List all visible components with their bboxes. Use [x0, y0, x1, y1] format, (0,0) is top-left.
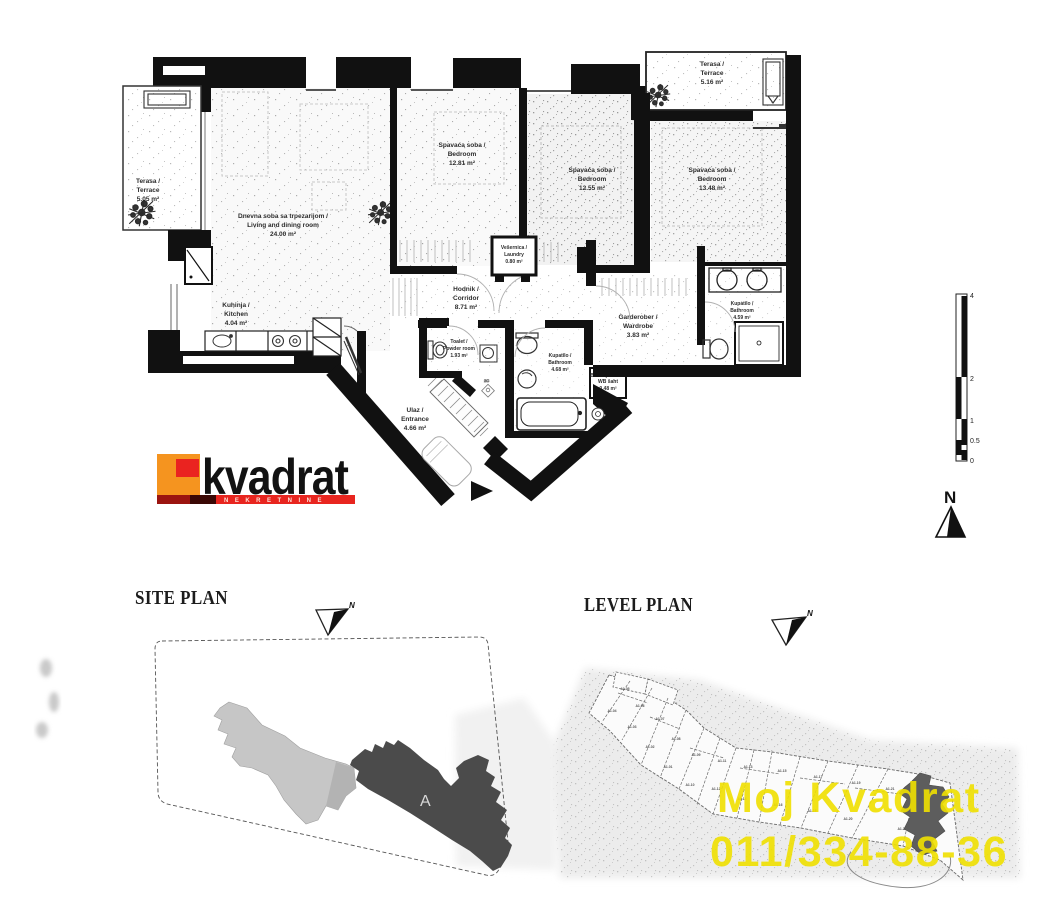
svg-text:4.59 m²: 4.59 m² [733, 315, 751, 321]
svg-text:Terrace: Terrace [136, 187, 159, 194]
svg-text:A1.02: A1.02 [645, 745, 654, 749]
svg-text:Hodnik /: Hodnik / [453, 286, 479, 293]
svg-text:Kitchen: Kitchen [224, 311, 248, 318]
svg-text:Spavaća soba /: Spavaća soba / [439, 142, 486, 149]
svg-text:Spavaća soba /: Spavaća soba / [689, 167, 736, 174]
svg-text:4.68 m²: 4.68 m² [551, 367, 569, 373]
svg-text:0: 0 [970, 458, 974, 465]
svg-text:Laundry: Laundry [504, 252, 524, 258]
svg-text:1.93 m²: 1.93 m² [450, 353, 468, 359]
svg-text:A1.13: A1.13 [743, 765, 752, 769]
svg-text:2C: 2C [484, 378, 489, 383]
svg-text:A1.09: A1.09 [691, 753, 700, 757]
svg-text:Living and dining room: Living and dining room [247, 222, 319, 229]
svg-text:011/334-88-36: 011/334-88-36 [710, 828, 1008, 876]
svg-text:Terasa /: Terasa / [136, 178, 160, 185]
svg-text:13.48 m²: 13.48 m² [699, 185, 726, 192]
svg-text:Bathroom: Bathroom [548, 360, 572, 366]
svg-text:12.81 m²: 12.81 m² [449, 160, 476, 167]
svg-text:NEKRETNINE: NEKRETNINE [224, 498, 328, 504]
svg-text:Powder room: Powder room [443, 346, 476, 352]
svg-text:N: N [349, 601, 355, 610]
svg-text:Moj Kvadrat: Moj Kvadrat [717, 774, 981, 822]
svg-text:2: 2 [970, 376, 974, 383]
svg-text:A1.05: A1.05 [620, 687, 629, 691]
svg-text:3.83 m²: 3.83 m² [627, 332, 650, 339]
svg-text:4: 4 [970, 293, 974, 300]
svg-text:Toalet /: Toalet / [450, 339, 468, 345]
svg-text:0.80 m²: 0.80 m² [505, 259, 523, 265]
svg-text:Bedroom: Bedroom [578, 176, 607, 183]
svg-text:Entrance: Entrance [401, 416, 429, 423]
svg-text:A1.06: A1.06 [635, 704, 644, 708]
svg-text:Ulaz /: Ulaz / [407, 407, 424, 414]
svg-text:A1.07: A1.07 [655, 717, 664, 721]
svg-text:A1.08: A1.08 [671, 737, 680, 741]
svg-text:A1.04: A1.04 [607, 709, 616, 713]
svg-text:A1.15: A1.15 [777, 769, 786, 773]
svg-text:Terasa /: Terasa / [700, 61, 724, 68]
svg-text:Dnevna soba sa trpezarijom /: Dnevna soba sa trpezarijom / [238, 213, 328, 220]
svg-text:A: A [420, 793, 431, 810]
svg-text:Kuhinja /: Kuhinja / [222, 302, 250, 309]
svg-text:12.55 m²: 12.55 m² [579, 185, 606, 192]
svg-text:Kupatilo /: Kupatilo / [549, 353, 572, 359]
svg-text:Bedroom: Bedroom [448, 151, 477, 158]
svg-text:A1.01: A1.01 [663, 765, 672, 769]
svg-text:Kupatilo /: Kupatilo / [731, 301, 754, 307]
svg-text:A1.10: A1.10 [685, 783, 694, 787]
svg-text:A1.11: A1.11 [718, 759, 727, 763]
svg-text:5.16 m²: 5.16 m² [701, 79, 724, 86]
svg-text:Vešernica /: Vešernica / [501, 245, 528, 251]
svg-text:4.66 m²: 4.66 m² [404, 425, 427, 432]
svg-text:0.5: 0.5 [970, 438, 980, 445]
svg-text:Bathroom: Bathroom [730, 308, 754, 314]
svg-text:N: N [944, 488, 956, 507]
svg-text:SITE PLAN: SITE PLAN [135, 587, 228, 609]
svg-text:24.00 m²: 24.00 m² [270, 231, 297, 238]
svg-text:Wardrobe: Wardrobe [623, 323, 653, 330]
svg-text:LEVEL PLAN: LEVEL PLAN [584, 594, 693, 616]
svg-text:5.05 m²: 5.05 m² [137, 196, 160, 203]
svg-text:1: 1 [970, 418, 974, 425]
svg-text:4.04 m²: 4.04 m² [225, 320, 248, 327]
svg-text:WB šaht: WB šaht [598, 379, 618, 385]
svg-text:N: N [807, 609, 813, 618]
svg-text:Corridor: Corridor [453, 295, 479, 302]
svg-text:Spavaća soba /: Spavaća soba / [569, 167, 616, 174]
svg-text:Terrace: Terrace [700, 70, 723, 77]
svg-text:Bedroom: Bedroom [698, 176, 727, 183]
svg-text:Garderober /: Garderober / [618, 314, 657, 321]
svg-text:A1.03: A1.03 [627, 725, 636, 729]
svg-text:8.71 m²: 8.71 m² [455, 304, 478, 311]
